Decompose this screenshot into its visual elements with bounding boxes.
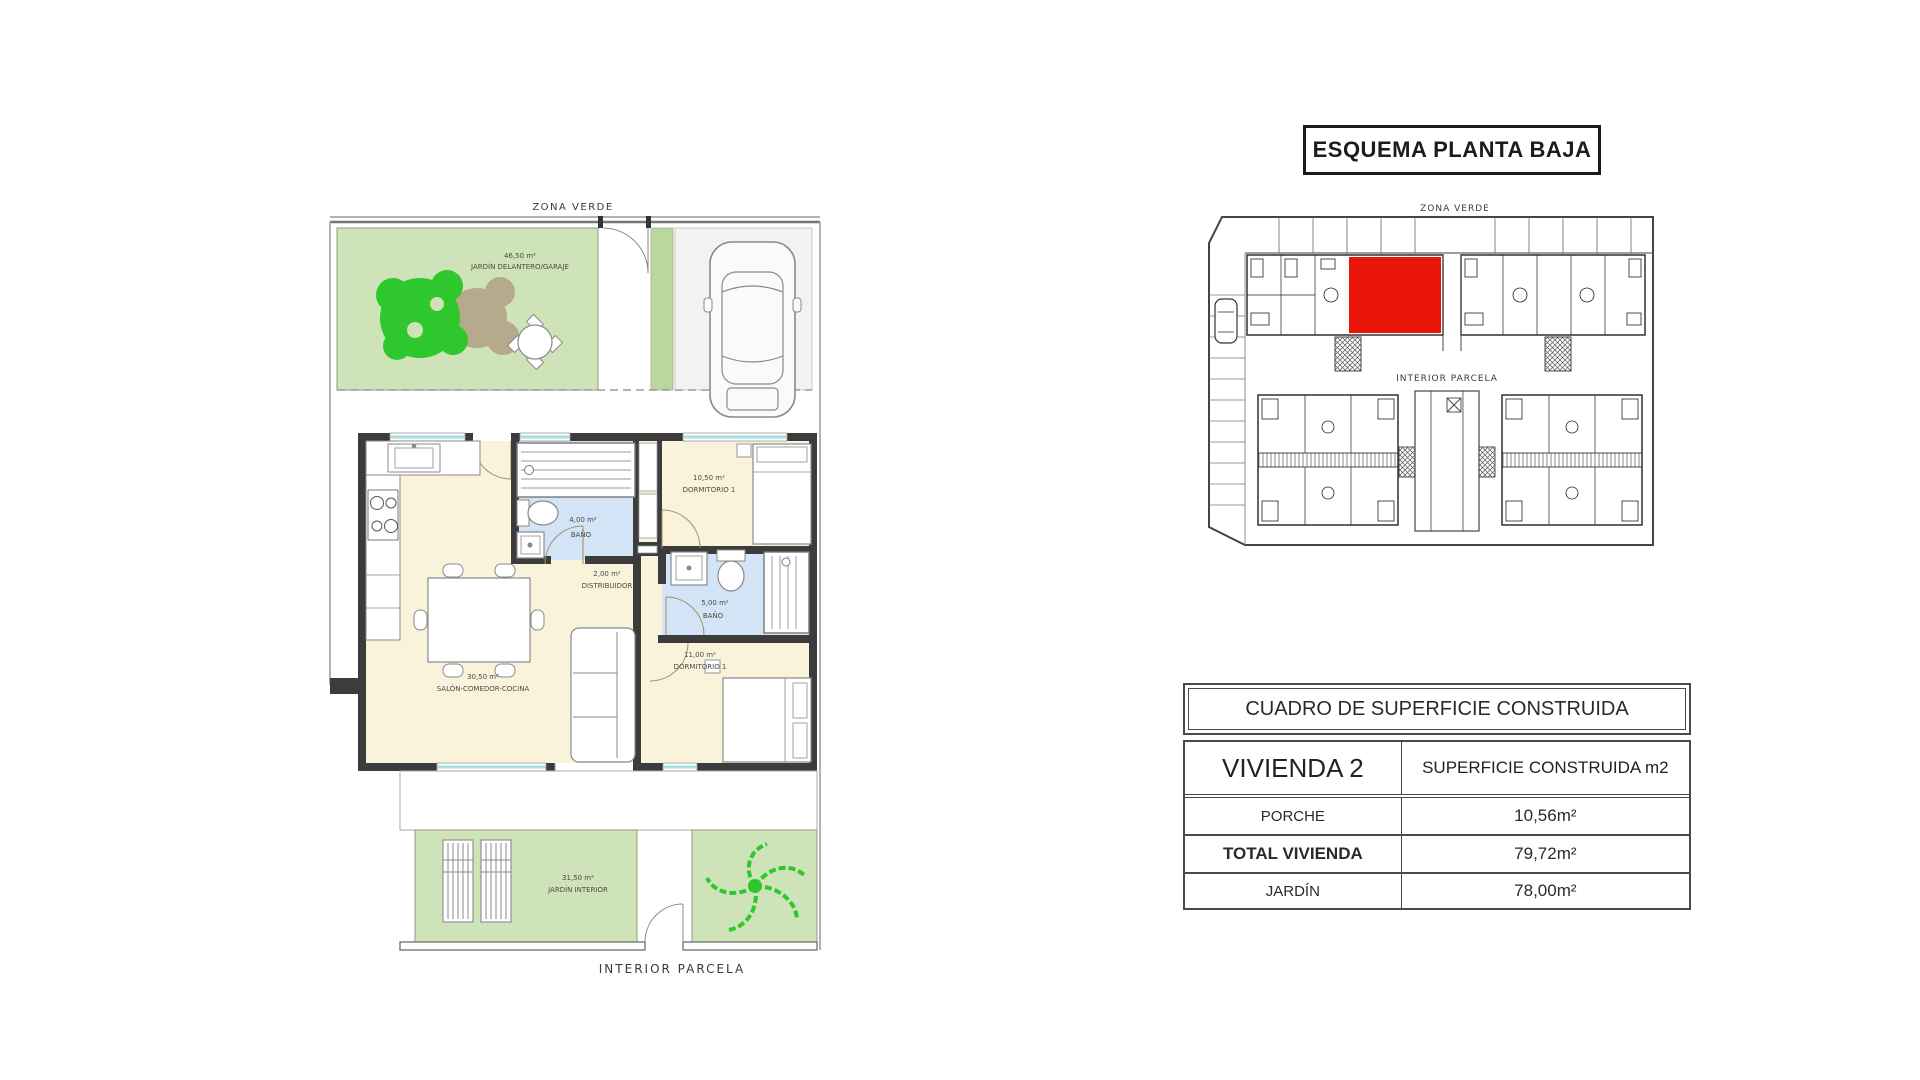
row-label: JARDÍN bbox=[1266, 883, 1320, 900]
front-zone: 46,50 m² JARDÍN DELANTERO/GARAJE bbox=[337, 216, 812, 417]
zona-verde-label: ZONA VERDE bbox=[532, 202, 613, 213]
bath1-area-label: 4,00 m² bbox=[569, 516, 597, 524]
porch-area bbox=[400, 771, 817, 830]
table-row: JARDÍN 78,00m² bbox=[1185, 874, 1689, 908]
wardrobe-icon bbox=[638, 443, 657, 553]
row-value: 10,56m² bbox=[1514, 806, 1576, 826]
living-name-label: SALÓN-COMEDOR-COCINA bbox=[437, 684, 530, 693]
sofa-icon bbox=[571, 628, 635, 762]
tree-icon bbox=[376, 270, 468, 360]
surface-table-body: VIVIENDA 2 SUPERFICIE CONSTRUIDA m2 PORC… bbox=[1183, 740, 1691, 910]
surface-table-title: CUADRO DE SUPERFICIE CONSTRUIDA bbox=[1245, 698, 1628, 721]
vivienda-header: VIVIENDA 2 bbox=[1222, 753, 1364, 784]
surface-table: CUADRO DE SUPERFICIE CONSTRUIDA VIVIENDA… bbox=[1183, 683, 1691, 910]
car-icon bbox=[704, 242, 801, 417]
bath1-name-label: BAÑO bbox=[571, 530, 592, 539]
interior-parcela-label: INTERIOR PARCELA bbox=[599, 962, 745, 976]
bedroom2-area-label: 11,00 m² bbox=[684, 651, 716, 659]
back-gardens: 31,50 m² JARDÍN INTERIOR bbox=[400, 830, 817, 950]
schematic-car-icon bbox=[1215, 299, 1237, 343]
living-area-label: 30,50 m² bbox=[467, 673, 499, 681]
bedroom2-name-label: DORMITORIO 1 bbox=[674, 663, 727, 671]
row-value: 78,00m² bbox=[1514, 881, 1576, 901]
sink-icon bbox=[517, 532, 544, 558]
shower2-icon bbox=[764, 552, 809, 633]
row-label: TOTAL VIVIENDA bbox=[1223, 844, 1363, 864]
dining-table-icon bbox=[414, 564, 544, 677]
schematic-zona-verde-label: ZONA VERDE bbox=[1420, 204, 1490, 214]
inner-garden-name-label: JARDÍN INTERIOR bbox=[547, 885, 608, 894]
shower-icon bbox=[517, 443, 635, 497]
main-floor-plan: ZONA VERDE bbox=[315, 180, 835, 980]
bedroom1-area-label: 10,50 m² bbox=[693, 474, 725, 482]
table-header-row: VIVIENDA 2 SUPERFICIE CONSTRUIDA m2 bbox=[1185, 742, 1689, 798]
highlighted-unit bbox=[1349, 257, 1441, 333]
bath2-name-label: BAÑO bbox=[703, 611, 724, 620]
row-label: PORCHE bbox=[1261, 808, 1325, 825]
row-value: 79,72m² bbox=[1514, 844, 1576, 864]
superficie-header: SUPERFICIE CONSTRUIDA m2 bbox=[1422, 758, 1669, 778]
table-col2-header-cell: SUPERFICIE CONSTRUIDA m2 bbox=[1402, 742, 1689, 794]
bedroom1-name-label: DORMITORIO 1 bbox=[683, 486, 736, 494]
inner-garden-area-label: 31,50 m² bbox=[562, 874, 594, 882]
hall-area-label: 2,00 m² bbox=[593, 570, 621, 578]
front-garden-area-label: 46,50 m² bbox=[504, 252, 536, 260]
bath2-area-label: 5,00 m² bbox=[701, 599, 729, 607]
front-garden-name-label: JARDÍN DELANTERO/GARAJE bbox=[470, 262, 569, 271]
toilet-icon bbox=[517, 500, 558, 526]
green-strip bbox=[651, 228, 673, 390]
house: 4,00 m² BAÑO 10,50 m² DORMITORIO 1 2,00 … bbox=[358, 433, 817, 779]
site-schematic: ZONA VERDE bbox=[1185, 195, 1695, 560]
hall-name-label: DISTRIBUIDOR bbox=[582, 582, 633, 590]
surface-table-title-box: CUADRO DE SUPERFICIE CONSTRUIDA bbox=[1183, 683, 1691, 735]
table-col1-header-cell: VIVIENDA 2 bbox=[1185, 742, 1402, 794]
toilet2-icon bbox=[717, 550, 745, 591]
scheme-title: ESQUEMA PLANTA BAJA bbox=[1313, 137, 1592, 163]
table-row: PORCHE 10,56m² bbox=[1185, 798, 1689, 836]
schematic-interior-parcela-label: INTERIOR PARCELA bbox=[1396, 374, 1498, 384]
sink2-icon bbox=[671, 552, 707, 585]
stairs-icon bbox=[1545, 337, 1571, 371]
stairs-icon bbox=[1335, 337, 1361, 371]
scheme-title-box: ESQUEMA PLANTA BAJA bbox=[1303, 125, 1601, 175]
table-row: TOTAL VIVIENDA 79,72m² bbox=[1185, 836, 1689, 874]
garden-gate bbox=[598, 216, 651, 273]
